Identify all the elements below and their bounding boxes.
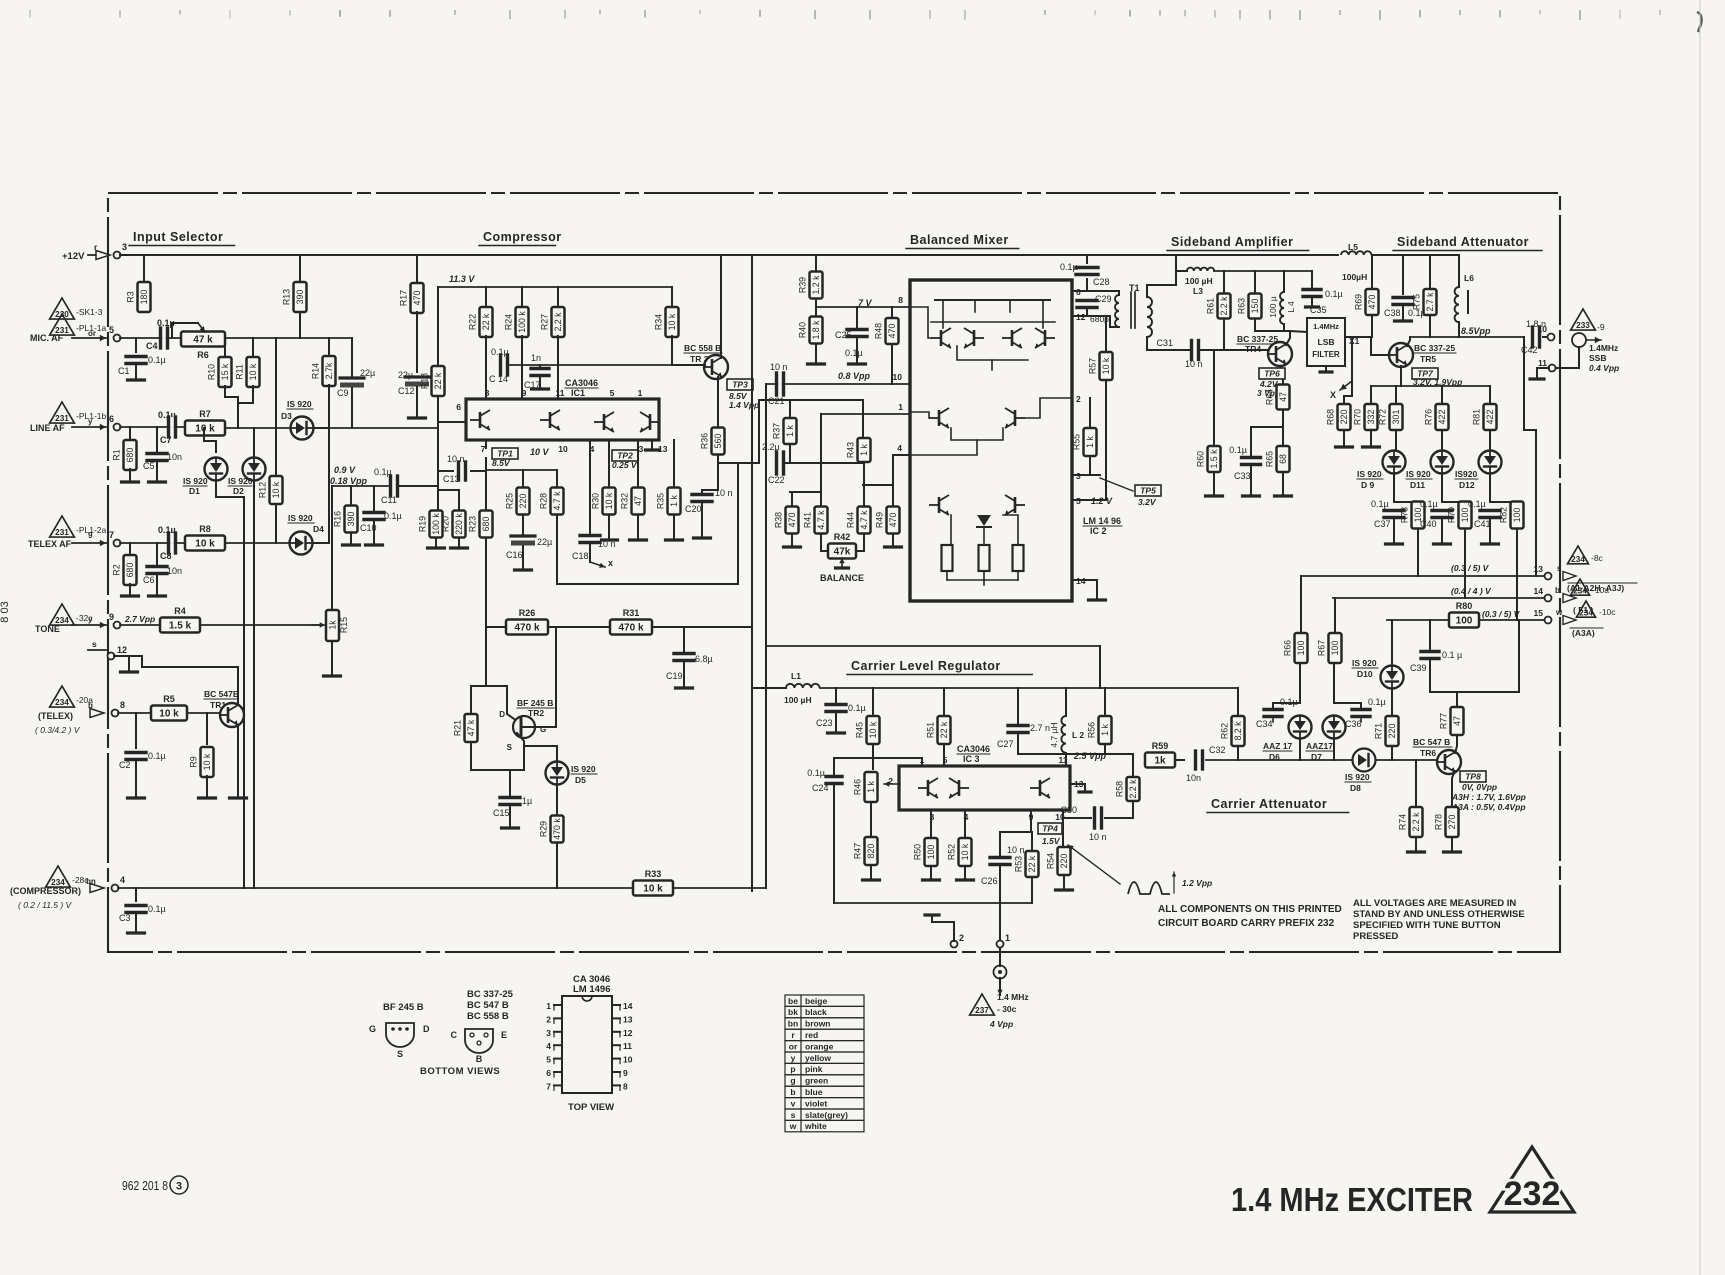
svg-text:7: 7 [109,530,114,540]
svg-text:R20: R20 [441,516,451,532]
svg-text:pink: pink [805,1064,823,1074]
svg-text:SSB: SSB [1589,353,1606,363]
svg-text:14: 14 [623,1001,633,1011]
svg-text:C24: C24 [812,783,829,793]
svg-text:-8c: -8c [1591,553,1604,563]
svg-text:10 k: 10 k [202,753,212,770]
svg-text:Carrier Level Regulator: Carrier Level Regulator [851,659,1001,673]
svg-text:220: 220 [518,494,528,509]
svg-text:100: 100 [1456,616,1473,627]
svg-text:1µ: 1µ [522,796,532,806]
svg-text:D: D [499,710,505,719]
svg-text:TONE: TONE [35,624,60,634]
svg-text:R70: R70 [1353,409,1363,425]
svg-text:D3: D3 [281,411,292,421]
svg-text:R15: R15 [339,617,349,633]
svg-text:IS920: IS920 [1455,469,1477,479]
svg-text:47 k: 47 k [466,719,476,736]
svg-text:332: 332 [1366,410,1376,425]
svg-text:R61: R61 [1206,298,1216,314]
svg-text:1.4 Vpp: 1.4 Vpp [729,400,759,410]
svg-text:(0.4 / 4 ) V: (0.4 / 4 ) V [1451,586,1492,596]
svg-text:100: 100 [1460,508,1470,523]
svg-text:R8: R8 [199,524,211,534]
svg-text:(0.3 / 5) V: (0.3 / 5) V [1482,609,1521,619]
svg-text:R40: R40 [798,322,808,338]
svg-text:R28: R28 [539,493,549,509]
svg-text:100 k: 100 k [517,311,527,333]
svg-text:L1: L1 [791,671,801,681]
svg-text:D8: D8 [1350,783,1361,793]
svg-text:0.8 Vpp: 0.8 Vpp [838,371,871,381]
svg-text:10 n: 10 n [1089,832,1107,842]
svg-text:R45: R45 [855,722,865,738]
svg-text:BC 337-25: BC 337-25 [1237,334,1278,344]
svg-text:10 k: 10 k [604,492,614,509]
svg-text:IS 920: IS 920 [288,513,313,523]
svg-text:L3: L3 [1193,286,1203,296]
svg-text:R47: R47 [853,843,863,859]
svg-text:R21: R21 [453,720,463,736]
svg-text:10n: 10n [167,452,182,462]
svg-text:R6: R6 [197,350,209,360]
svg-text:2.7 k: 2.7 k [1425,292,1435,312]
svg-text:234: 234 [1573,587,1587,596]
svg-text:C36: C36 [1345,719,1362,729]
svg-text:R51: R51 [926,722,936,738]
svg-text:22 k: 22 k [939,721,949,738]
svg-text:0.1 µ: 0.1 µ [1442,650,1462,660]
svg-text:blue: blue [805,1087,823,1097]
svg-text:C9: C9 [337,388,349,398]
svg-text:10 k: 10 k [667,313,677,330]
svg-text:s: s [92,639,97,649]
svg-text:R33: R33 [645,869,662,879]
svg-text:100: 100 [1330,641,1340,656]
svg-text:8.2 k: 8.2 k [1233,721,1243,741]
svg-text:1.4 MHz EXCITER: 1.4 MHz EXCITER [1231,1181,1473,1218]
svg-text:10 k: 10 k [195,539,215,550]
svg-text:4: 4 [546,1041,551,1051]
svg-text:3: 3 [546,1028,551,1038]
svg-text:IS 920: IS 920 [183,476,208,486]
svg-text:0.9 V: 0.9 V [334,465,356,475]
svg-text:BC 558 B: BC 558 B [467,1011,509,1022]
svg-text:orange: orange [805,1041,834,1051]
svg-text:390: 390 [346,512,356,527]
svg-text:BC 547 B: BC 547 B [467,1000,509,1011]
svg-text:LINE AF: LINE AF [30,423,65,433]
svg-text:R3: R3 [126,291,136,302]
svg-text:R65: R65 [1265,451,1275,467]
svg-text:TP6: TP6 [1264,369,1280,379]
svg-text:47: 47 [1452,716,1462,726]
svg-text:100: 100 [1512,508,1522,523]
svg-text:b: b [790,1087,795,1097]
svg-text:E: E [501,1030,507,1040]
svg-text:(TELEX): (TELEX) [38,711,73,721]
svg-text:b: b [1555,586,1560,595]
svg-text:TP3: TP3 [732,380,748,390]
svg-text:bk: bk [788,1007,798,1017]
svg-text:13: 13 [1534,564,1544,574]
svg-text:2: 2 [546,1014,551,1024]
svg-text:1 k: 1 k [1100,724,1110,736]
svg-text:S: S [397,1049,403,1059]
svg-text:p: p [790,1064,795,1074]
svg-text:C12: C12 [398,386,415,396]
svg-text:IS 920: IS 920 [571,764,596,774]
svg-text:R57: R57 [1088,358,1098,374]
svg-text:R14: R14 [311,363,321,379]
svg-text:C4: C4 [146,341,158,351]
svg-text:100: 100 [1296,641,1306,656]
svg-text:5: 5 [610,388,615,398]
svg-text:AAZ17: AAZ17 [1306,741,1333,751]
svg-text:820: 820 [866,844,876,859]
svg-text:(COMPRESSOR): (COMPRESSOR) [10,886,81,896]
svg-text:R75: R75 [1412,294,1422,310]
svg-text:100: 100 [926,845,936,860]
svg-text:11.3 V: 11.3 V [449,274,475,284]
svg-text:1.2 Vpp: 1.2 Vpp [1182,878,1212,888]
svg-text:X: X [1330,390,1336,400]
svg-text:C3: C3 [119,913,131,923]
svg-text:22µ: 22µ [360,368,375,378]
svg-text:1k: 1k [1154,756,1166,767]
svg-text:1k: 1k [328,620,338,630]
svg-text:TP5: TP5 [1140,486,1156,496]
svg-text:D: D [423,1024,430,1034]
svg-text:9: 9 [522,388,527,398]
svg-text:11: 11 [1538,358,1547,368]
svg-text:10 n: 10 n [770,362,788,372]
svg-text:233: 233 [1576,321,1590,330]
svg-text:S: S [507,743,513,752]
svg-text:47 k: 47 k [193,335,213,346]
svg-text:301: 301 [1391,410,1401,425]
svg-text:B: B [476,1054,483,1064]
svg-text:D2: D2 [233,486,244,496]
svg-text:BC 547B: BC 547B [204,689,239,699]
svg-text:g: g [790,1076,795,1086]
svg-text:1.4MHz: 1.4MHz [1589,343,1618,353]
svg-text:ALL COMPONENTS ON THIS PRI: ALL COMPONENTS ON THIS PRINTED [1158,904,1342,915]
svg-text:8.5V: 8.5V [492,458,511,468]
svg-text:1.5 k: 1.5 k [1209,449,1219,469]
svg-text:10: 10 [893,372,903,382]
svg-text:1.4MHz: 1.4MHz [1313,322,1339,331]
svg-text:R42: R42 [834,532,851,542]
svg-text:beige: beige [805,996,827,1006]
svg-text:470: 470 [1367,295,1377,310]
svg-text:22 k: 22 k [481,313,491,330]
svg-text:R55: R55 [1072,434,1082,450]
svg-text:11: 11 [623,1041,632,1051]
svg-text:470 k: 470 k [514,623,539,634]
svg-text:220: 220 [1059,854,1069,869]
svg-text:2: 2 [959,933,964,943]
svg-text:12: 12 [117,645,127,655]
svg-text:4 Vpp: 4 Vpp [989,1019,1013,1029]
svg-text:R29: R29 [539,821,549,837]
svg-text:LM 1496: LM 1496 [573,984,611,995]
svg-text:R4: R4 [174,606,186,616]
svg-text:BOTTOM VIEWS: BOTTOM VIEWS [420,1066,500,1077]
svg-text:7: 7 [481,444,486,454]
svg-text:422: 422 [1485,410,1495,425]
svg-text:R24: R24 [504,314,514,330]
svg-text:Compressor: Compressor [483,230,562,244]
svg-text:R54: R54 [1046,853,1056,869]
svg-text:1 k: 1 k [866,781,876,793]
svg-text:BF 245 B: BF 245 B [517,698,553,708]
svg-text:1 k: 1 k [1085,436,1095,448]
svg-text:LSB: LSB [1318,337,1335,347]
svg-text:3: 3 [122,242,127,252]
svg-text:R1: R1 [112,449,122,460]
svg-text:C32: C32 [1209,745,1226,755]
svg-text:1 k: 1 k [785,425,795,437]
svg-text:470: 470 [787,513,797,528]
svg-text:R43: R43 [846,442,856,458]
svg-text:15 k: 15 k [220,363,230,380]
svg-text:0.1µ: 0.1µ [1420,499,1438,509]
svg-text:bn: bn [788,1019,798,1029]
svg-text:w: w [1555,608,1563,617]
svg-text:R32: R32 [620,493,630,509]
svg-text:R82: R82 [1499,507,1509,523]
svg-text:C40: C40 [1420,519,1437,529]
svg-text:5: 5 [109,325,114,335]
svg-text:2.5 Vpp: 2.5 Vpp [1073,751,1107,761]
svg-text:100 k: 100 k [431,513,441,535]
svg-text:C16: C16 [506,550,523,560]
svg-text:10 k: 10 k [195,424,215,435]
svg-text:L 4: L 4 [1286,301,1296,313]
svg-text:-9: -9 [1597,322,1605,332]
svg-text:R7: R7 [199,409,211,419]
svg-text:10 k: 10 k [1101,357,1111,374]
svg-text:68: 68 [1278,454,1288,464]
svg-text:TP4: TP4 [1042,824,1058,834]
svg-text:LM 14 96: LM 14 96 [1083,516,1121,526]
svg-text:0.4 Vpp: 0.4 Vpp [1589,363,1619,373]
svg-text:red: red [805,1030,818,1040]
svg-text:0.1µ: 0.1µ [848,703,866,713]
svg-text:or: or [88,329,96,338]
svg-text:22µ: 22µ [537,537,552,547]
svg-text:234: 234 [55,698,69,707]
svg-text:4.7 k: 4.7 k [552,491,562,511]
svg-text:white: white [804,1121,827,1131]
svg-text:0.1µ: 0.1µ [1325,289,1343,299]
svg-text:C18: C18 [572,551,589,561]
svg-text:Input Selector: Input Selector [133,230,223,244]
svg-text:R53: R53 [1014,856,1024,872]
svg-text:1: 1 [1005,933,1010,943]
svg-text:R77: R77 [1439,713,1449,729]
svg-text:(0.3 / 5) V: (0.3 / 5) V [1451,563,1490,573]
svg-text:C8: C8 [160,551,172,561]
svg-text:C 14: C 14 [489,374,508,384]
svg-text:G: G [540,725,546,734]
svg-text:IS 920: IS 920 [1357,469,1382,479]
svg-text:x: x [608,558,613,568]
svg-text:10 n: 10 n [1185,359,1203,369]
svg-text:R59: R59 [1152,741,1169,751]
svg-text:220: 220 [1387,724,1397,739]
svg-text:100 µ: 100 µ [1268,296,1278,318]
svg-text:0.1µ: 0.1µ [384,511,402,521]
svg-text:R79: R79 [1447,507,1457,523]
svg-text:R56: R56 [1087,722,1097,738]
svg-text:962 201 8: 962 201 8 [122,1179,168,1193]
svg-text:6: 6 [456,402,461,412]
svg-text:L 2: L 2 [1072,730,1084,740]
svg-text:270: 270 [1447,815,1457,830]
svg-text:C5: C5 [143,461,155,471]
svg-text:0.1µ: 0.1µ [374,467,392,477]
svg-text:10 k: 10 k [960,843,970,860]
svg-text:9: 9 [88,531,93,540]
svg-text:Carrier Attenuator: Carrier Attenuator [1211,797,1327,811]
svg-text:R18: R18 [420,373,430,389]
svg-text:C6: C6 [143,575,155,585]
svg-text:0.1µ: 0.1µ [1468,499,1486,509]
svg-text:8: 8 [623,1081,628,1091]
svg-text:s: s [791,1110,796,1120]
svg-text:6: 6 [546,1068,551,1078]
svg-text:R69: R69 [1354,294,1364,310]
svg-text:TR2: TR2 [528,708,544,718]
svg-text:1: 1 [898,402,903,412]
svg-text:black: black [805,1007,827,1017]
svg-text:1.4 MHz: 1.4 MHz [997,992,1029,1002]
svg-text:11: 11 [556,388,565,398]
svg-text:C33: C33 [1234,471,1251,481]
svg-text:R37: R37 [772,423,782,439]
svg-text:9: 9 [623,1068,628,1078]
svg-text:MIC. AF: MIC. AF [30,333,64,343]
svg-text:STAND BY AND UNLESS OTHERWISE: STAND BY AND UNLESS OTHERWISE [1353,909,1525,920]
svg-text:Sideband Amplifier: Sideband Amplifier [1171,235,1293,249]
svg-text:( 0.3/4.2 ) V: ( 0.3/4.2 ) V [35,725,81,735]
svg-text:234: 234 [1579,609,1593,618]
svg-text:R49: R49 [875,512,885,528]
svg-text:R78: R78 [1434,814,1444,830]
svg-text:R10: R10 [207,364,217,380]
svg-text:2.2 k: 2.2 k [1219,296,1229,316]
svg-text:0.1µ: 0.1µ [1229,445,1247,455]
svg-text:C15: C15 [493,808,510,818]
svg-text:1n: 1n [531,353,541,363]
svg-text:3.2V: 3.2V [1138,497,1157,507]
svg-text:be: be [788,996,798,1006]
svg-text:22 k: 22 k [1027,855,1037,872]
svg-text:C41: C41 [1474,519,1491,529]
svg-text:C1: C1 [118,366,130,376]
svg-text:2.2 k: 2.2 k [1128,779,1138,799]
svg-text:8.5Vpp: 8.5Vpp [1461,326,1491,336]
svg-text:R72: R72 [1378,409,1388,425]
svg-text:0.1µ: 0.1µ [1371,499,1389,509]
svg-text:R12: R12 [258,482,268,498]
svg-text:1.8 k: 1.8 k [811,320,821,340]
svg-text:C13: C13 [443,474,460,484]
svg-text:4: 4 [120,875,125,885]
svg-text:10 n: 10 n [447,454,465,464]
svg-text:y: y [88,615,93,624]
svg-text:FILTER: FILTER [1312,350,1340,359]
svg-text:10 n: 10 n [715,488,733,498]
svg-text:0V, 0Vpp: 0V, 0Vpp [1462,782,1497,792]
svg-text:C11: C11 [381,495,397,505]
svg-text:470: 470 [887,324,897,339]
svg-text:1: 1 [638,388,643,398]
svg-text:C34: C34 [1256,719,1273,729]
svg-text:470 k: 470 k [618,623,643,634]
svg-text:C10: C10 [360,523,377,533]
svg-text:231: 231 [55,414,69,423]
svg-text:R27: R27 [540,314,550,330]
svg-text:0.1µ: 0.1µ [807,768,825,778]
svg-text:R76: R76 [1424,409,1434,425]
svg-text:10 k: 10 k [643,884,663,895]
svg-text:3: 3 [176,1181,182,1193]
svg-text:IC 3: IC 3 [963,754,980,764]
svg-text:R2: R2 [112,564,122,575]
svg-text:R26: R26 [519,608,536,618]
svg-text:150: 150 [1250,299,1260,314]
svg-text:SPECIFIED WITH TUNE BUTTON: SPECIFIED WITH TUNE BUTTON [1353,920,1501,931]
svg-text:IS 920: IS 920 [1345,772,1370,782]
svg-text:R46: R46 [853,779,863,795]
svg-text:TR6: TR6 [1420,748,1436,758]
svg-text:IS 920: IS 920 [228,476,253,486]
svg-text:TELEX AF: TELEX AF [28,539,72,549]
svg-text:4: 4 [897,443,902,453]
svg-text:A3A : 0.5V, 0.4Vpp: A3A : 0.5V, 0.4Vpp [1451,802,1526,812]
svg-text:4.7 k: 4.7 k [816,510,826,530]
svg-text:C38: C38 [1384,308,1401,318]
svg-text:4.7 k: 4.7 k [859,510,869,530]
svg-text:5: 5 [546,1055,551,1065]
svg-text:CA3046: CA3046 [957,744,990,754]
svg-text:10n: 10n [167,566,182,576]
svg-text:R50: R50 [913,844,923,860]
svg-text:R66: R66 [1283,640,1293,656]
svg-text:L6: L6 [1464,273,1474,283]
svg-text:2.2µ: 2.2µ [762,442,780,452]
svg-text:C25: C25 [835,330,852,340]
svg-text:R80: R80 [1456,601,1473,611]
svg-text:BC 547 B: BC 547 B [1413,737,1450,747]
svg-text:TR4: TR4 [1245,344,1261,354]
svg-text:(A3A): (A3A) [1572,628,1595,638]
svg-text:560: 560 [713,434,723,449]
svg-text:green: green [805,1076,828,1086]
svg-text:8: 8 [898,295,903,305]
svg-text:R19: R19 [418,516,428,532]
svg-text:R60: R60 [1196,451,1206,467]
svg-text:2.7 n: 2.7 n [1030,723,1050,733]
svg-text:234: 234 [1571,555,1585,564]
svg-text:0.1µ: 0.1µ [148,751,166,761]
svg-text:470: 470 [888,513,898,528]
svg-text:BC 337-25: BC 337-25 [1414,343,1455,353]
svg-text:or: or [789,1041,798,1051]
